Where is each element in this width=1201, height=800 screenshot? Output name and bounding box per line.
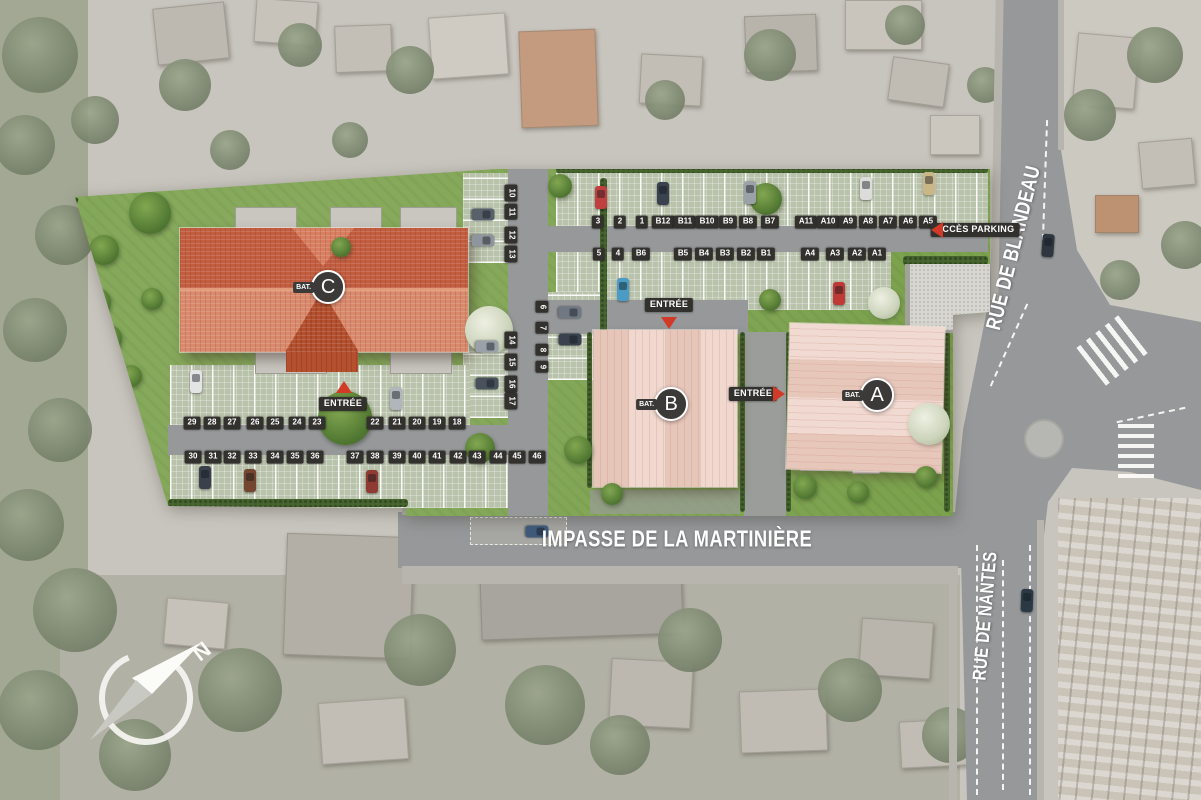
- tree: [548, 174, 572, 198]
- building-a-badge: BAT.A: [839, 378, 894, 412]
- parking-spot-label-33: 33: [245, 451, 262, 464]
- tree: [564, 436, 592, 464]
- parking-spot-label-5: 5: [593, 248, 605, 261]
- car: [190, 370, 202, 393]
- tree-flowering: [908, 403, 950, 445]
- parking-spot-label-B3: B3: [716, 248, 734, 261]
- parking-spot-label-20: 20: [409, 417, 426, 430]
- parking-spot-label-B9: B9: [719, 216, 737, 229]
- hedge: [168, 499, 408, 507]
- terrace: [390, 352, 452, 374]
- parking-spot-label-6: 6: [536, 301, 549, 313]
- parking-spot-label-A8: A8: [859, 216, 877, 229]
- tree-flowering: [868, 287, 900, 319]
- parking-spot-label-38: 38: [367, 451, 384, 464]
- parking-spot-label-B6: B6: [632, 248, 650, 261]
- entrance-3-arrow-right-icon: [773, 386, 785, 402]
- car: [833, 282, 845, 305]
- car: [476, 341, 499, 353]
- hedge: [740, 332, 745, 512]
- parking-spot-label-23: 23: [309, 417, 326, 430]
- parking-spot-label-B1: B1: [757, 248, 775, 261]
- tree: [83, 288, 111, 316]
- parking-spot-label-41: 41: [429, 451, 446, 464]
- hedge-site-west-edge: [0, 197, 79, 506]
- car: [472, 235, 495, 247]
- car: [476, 378, 499, 390]
- parking-spot-label-3: 3: [592, 216, 604, 229]
- terrace: [330, 207, 382, 229]
- car: [199, 466, 211, 489]
- tree: [915, 466, 937, 488]
- compass-rose: N: [80, 630, 230, 760]
- parking-spot-label-13: 13: [505, 246, 518, 263]
- parking-access-label: ACCÈS PARKING: [931, 223, 1020, 237]
- car: [559, 307, 582, 319]
- car: [744, 181, 756, 204]
- car: [390, 387, 402, 410]
- parking-spot-label-16: 16: [505, 376, 518, 393]
- parking-spot-label-B4: B4: [695, 248, 713, 261]
- entrance-1-arrow-up-icon: [336, 381, 352, 393]
- building-badge-prefix: BAT.: [842, 390, 863, 401]
- car: [1021, 589, 1034, 612]
- parking-spot-label-A2: A2: [848, 248, 866, 261]
- parking-spot-label-B2: B2: [737, 248, 755, 261]
- entrance-2-arrow-down-icon: [661, 317, 677, 329]
- hedge: [587, 332, 592, 488]
- car: [244, 469, 256, 492]
- parking-spot-label-7: 7: [536, 322, 549, 334]
- car: [366, 470, 378, 493]
- parking-spot-label-A4: A4: [801, 248, 819, 261]
- building-badge-letter: B: [654, 387, 688, 421]
- parking-spot-label-A3: A3: [826, 248, 844, 261]
- car: [1041, 234, 1055, 258]
- tree: [120, 365, 142, 387]
- building-badge-prefix: BAT.: [293, 282, 314, 293]
- parking-spot-label-11: 11: [505, 204, 518, 220]
- parking-spot-label-42: 42: [450, 451, 467, 464]
- street-label-impasse-de-la-martini-re: IMPASSE DE LA MARTINIÈRE: [542, 526, 812, 553]
- parking-spot-label-26: 26: [247, 417, 264, 430]
- tree: [129, 192, 171, 234]
- parking-spot-label-B11: B11: [674, 216, 696, 229]
- parking-spot-label-A10: A10: [817, 216, 840, 229]
- car: [923, 172, 935, 195]
- parking-spot-label-10: 10: [505, 185, 518, 202]
- parking-spot-label-14: 14: [505, 332, 518, 349]
- parking-spot-label-A1: A1: [868, 248, 886, 261]
- parking-spot-label-35: 35: [287, 451, 304, 464]
- parking-spot-label-B12: B12: [652, 216, 675, 229]
- parking-spot-label-2: 2: [614, 216, 626, 229]
- parking-spot-label-15: 15: [505, 354, 518, 371]
- parking-spot-label-B8: B8: [739, 216, 757, 229]
- tree: [601, 483, 623, 505]
- tree: [331, 237, 351, 257]
- parking-spot-label-8: 8: [536, 344, 549, 356]
- terrace: [235, 207, 297, 229]
- parking-spot-label-1: 1: [636, 216, 648, 229]
- parking-spot-label-45: 45: [509, 451, 526, 464]
- parking-spot-label-A11: A11: [795, 216, 817, 229]
- parking-spot-label-A6: A6: [899, 216, 917, 229]
- tree: [96, 325, 122, 351]
- site-plan-image: 321B12B11B10B9B8B7A11A10A9A8A7A6A554B6B5…: [0, 0, 1201, 800]
- parking-spot-label-30: 30: [185, 451, 202, 464]
- building-badge-letter: A: [860, 378, 894, 412]
- parking-spot-label-18: 18: [449, 417, 466, 430]
- parking-spot-label-4: 4: [612, 248, 624, 261]
- entrance-1-label: ENTRÉE: [319, 397, 367, 411]
- parking-spot-label-32: 32: [224, 451, 241, 464]
- parking-spot-label-24: 24: [289, 417, 306, 430]
- parking-spot-label-A7: A7: [879, 216, 897, 229]
- gravel-courtyard: [905, 264, 991, 333]
- building-c-badge: BAT.C: [290, 270, 345, 304]
- parking-spot-label-9: 9: [536, 361, 549, 373]
- car: [559, 334, 582, 346]
- entrance-3-label: ENTRÉE: [729, 387, 777, 401]
- parking-spot-label-40: 40: [409, 451, 426, 464]
- building-b-badge: BAT.B: [633, 387, 688, 421]
- parking-spot-label-28: 28: [204, 417, 221, 430]
- building-badge-prefix: BAT.: [636, 399, 657, 410]
- parking-spot-label-19: 19: [429, 417, 446, 430]
- tree: [89, 235, 119, 265]
- parking-spot-label-B5: B5: [674, 248, 692, 261]
- parking-spot-label-29: 29: [184, 417, 201, 430]
- parking-spot-label-B10: B10: [696, 216, 719, 229]
- parking-spot-label-37: 37: [347, 451, 364, 464]
- parking-spot-label-12: 12: [505, 227, 518, 244]
- parking-spot-label-43: 43: [469, 451, 486, 464]
- parking-spot-label-46: 46: [529, 451, 546, 464]
- parking-spot-label-25: 25: [267, 417, 284, 430]
- parking-spot-label-22: 22: [367, 417, 384, 430]
- car: [617, 278, 629, 301]
- parking-spot-label-31: 31: [205, 451, 222, 464]
- entrance-2-label: ENTRÉE: [645, 298, 693, 312]
- parking-spot-label-B7: B7: [761, 216, 779, 229]
- tree: [847, 481, 869, 503]
- parking-spot-label-34: 34: [267, 451, 284, 464]
- parking-spot-label-36: 36: [307, 451, 324, 464]
- internal-path-ab: [744, 332, 786, 516]
- terrace: [400, 207, 457, 229]
- building-badge-letter: C: [311, 270, 345, 304]
- parking-spot-label-21: 21: [389, 417, 406, 430]
- parking-spot-label-44: 44: [490, 451, 507, 464]
- car: [472, 209, 495, 221]
- parking-spot-label-27: 27: [224, 417, 241, 430]
- parking-access-arrow-left-icon: [931, 222, 943, 238]
- tree: [793, 475, 817, 499]
- parking-spot-label-17: 17: [505, 393, 518, 410]
- tree: [759, 289, 781, 311]
- car: [657, 182, 669, 205]
- car: [860, 177, 872, 200]
- parking-spot-label-39: 39: [389, 451, 406, 464]
- compass-north-label: N: [188, 636, 216, 665]
- parking-spot-label-A9: A9: [839, 216, 857, 229]
- tree: [141, 288, 163, 310]
- car: [595, 186, 607, 209]
